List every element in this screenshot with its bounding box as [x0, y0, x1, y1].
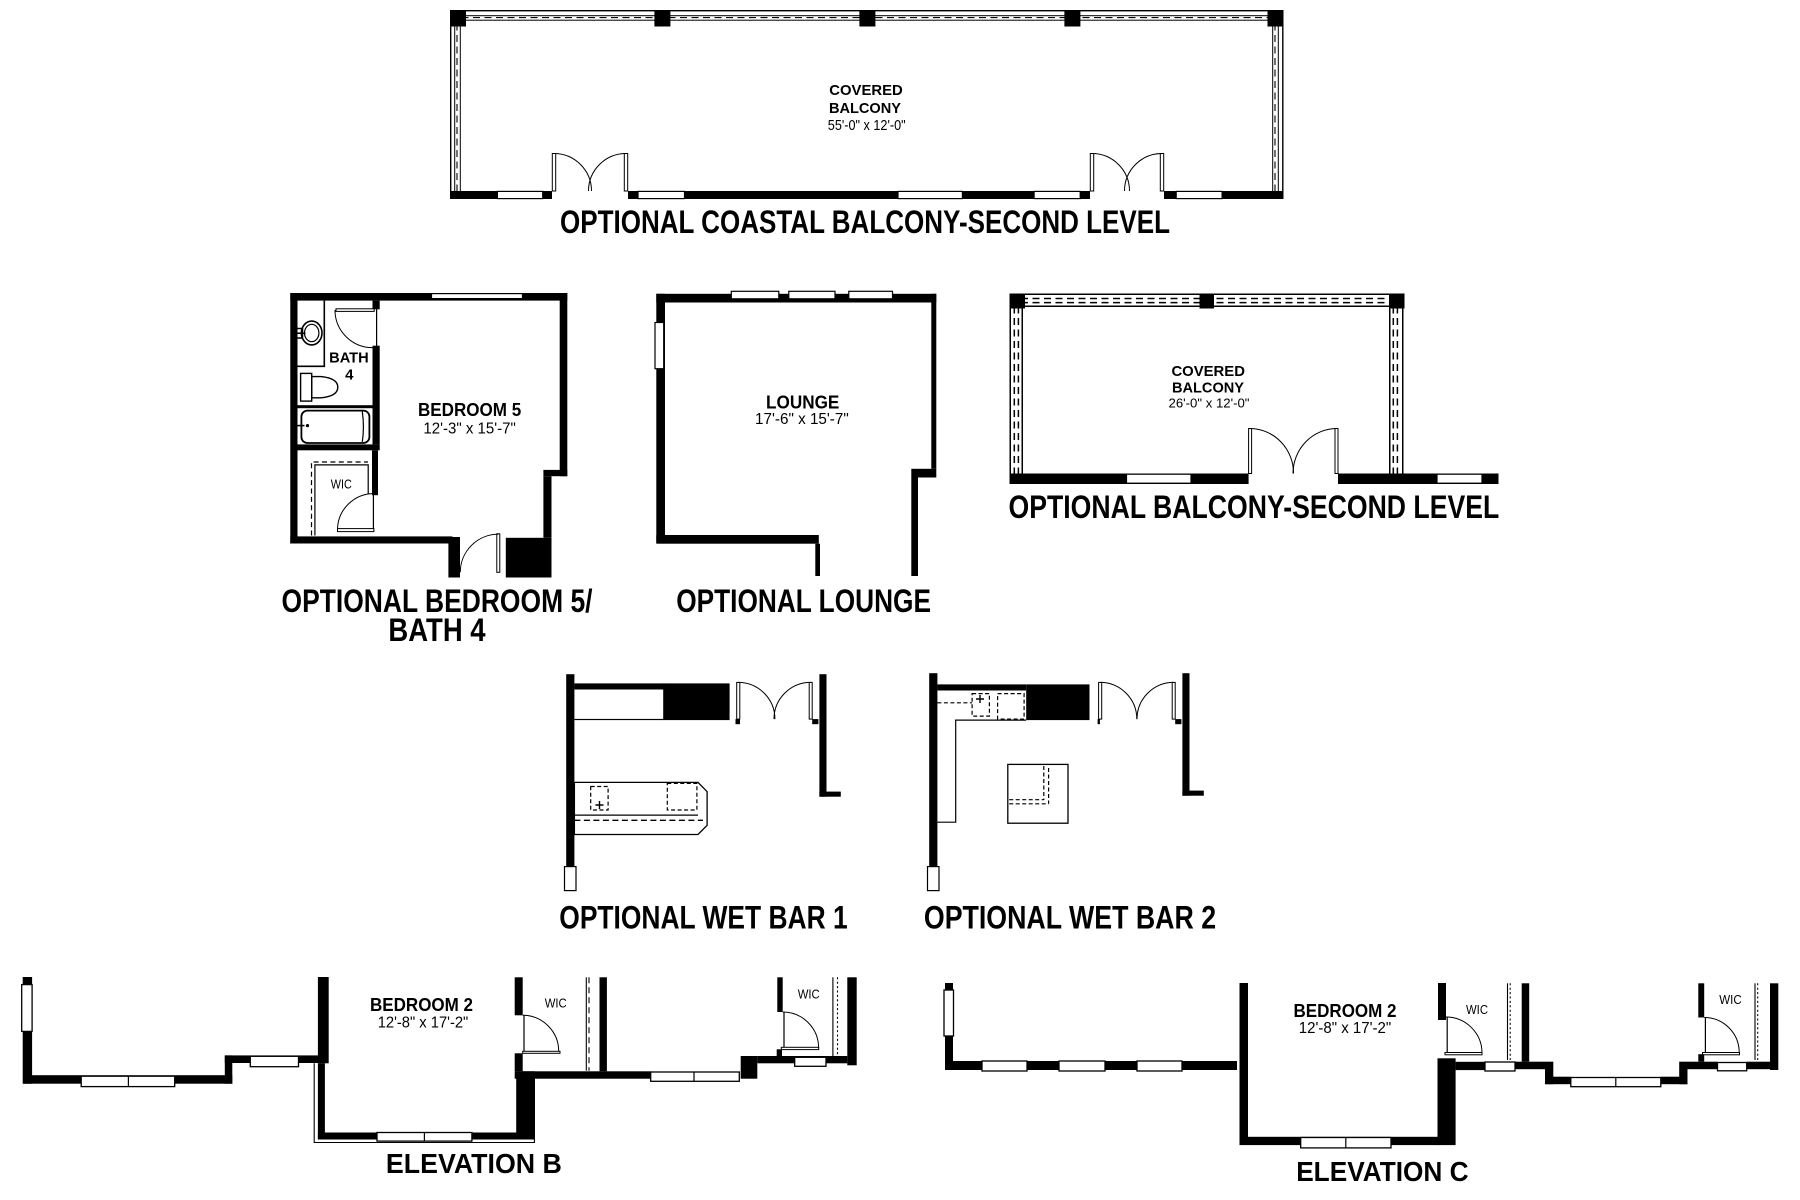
svg-text:BATH 4: BATH 4	[388, 612, 485, 648]
svg-text:BEDROOM 2: BEDROOM 2	[370, 995, 473, 1015]
svg-text:26'-0" x 12'-0": 26'-0" x 12'-0"	[1169, 396, 1250, 411]
svg-text:BATH: BATH	[329, 349, 369, 366]
svg-text:55'-0" x 12'-0": 55'-0" x 12'-0"	[828, 117, 906, 134]
svg-text:12'-8" x 17'-2": 12'-8" x 17'-2"	[1299, 1020, 1391, 1037]
svg-text:LOUNGE: LOUNGE	[766, 392, 839, 412]
svg-text:OPTIONAL COASTAL BALCONY-SECON: OPTIONAL COASTAL BALCONY-SECOND LEVEL	[560, 204, 1170, 240]
svg-text:WIC: WIC	[331, 478, 352, 492]
svg-text:12'-8" x 17'-2": 12'-8" x 17'-2"	[378, 1015, 469, 1032]
svg-text:OPTIONAL WET BAR 2: OPTIONAL WET BAR 2	[924, 900, 1216, 936]
svg-text:WIC: WIC	[798, 988, 820, 1002]
svg-text:BALCONY: BALCONY	[1172, 380, 1244, 397]
svg-text:ELEVATION B: ELEVATION B	[386, 1148, 562, 1179]
svg-text:COVERED: COVERED	[829, 82, 903, 99]
svg-text:4: 4	[345, 367, 354, 384]
svg-text:WIC: WIC	[1466, 1003, 1488, 1017]
svg-text:BEDROOM 5: BEDROOM 5	[418, 400, 521, 420]
svg-text:OPTIONAL BALCONY-SECOND LEVEL: OPTIONAL BALCONY-SECOND LEVEL	[1009, 489, 1500, 525]
svg-text:WIC: WIC	[1719, 993, 1742, 1007]
svg-text:17'-6" x 15'-7": 17'-6" x 15'-7"	[755, 411, 849, 428]
svg-text:BEDROOM 2: BEDROOM 2	[1294, 1001, 1397, 1021]
svg-text:OPTIONAL WET BAR 1: OPTIONAL WET BAR 1	[559, 900, 847, 936]
svg-text:COVERED: COVERED	[1171, 363, 1245, 380]
svg-text:12'-3" x 15'-7": 12'-3" x 15'-7"	[423, 420, 515, 437]
svg-text:WIC: WIC	[545, 996, 567, 1010]
svg-text:BALCONY: BALCONY	[829, 100, 901, 117]
svg-text:ELEVATION C: ELEVATION C	[1296, 1156, 1468, 1187]
svg-text:OPTIONAL LOUNGE: OPTIONAL LOUNGE	[676, 583, 931, 619]
